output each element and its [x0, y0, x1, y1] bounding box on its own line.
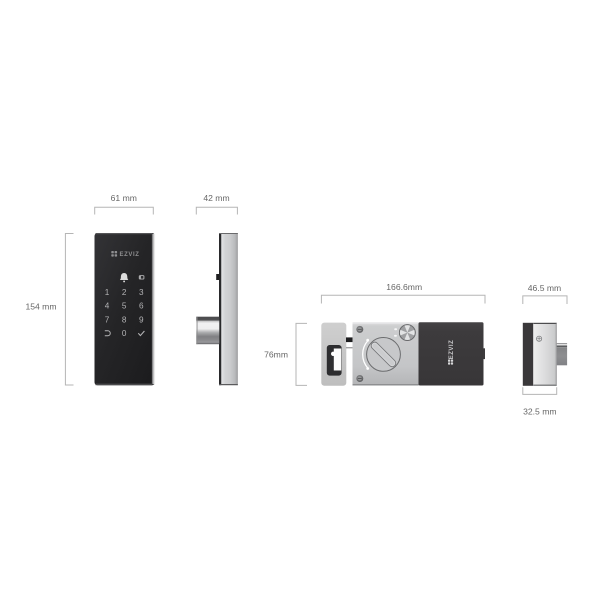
svg-text:76mm: 76mm [264, 350, 288, 360]
svg-text:7: 7 [105, 315, 110, 324]
svg-text:46.5 mm: 46.5 mm [528, 283, 561, 293]
svg-text:3: 3 [139, 288, 144, 297]
svg-text:5: 5 [122, 301, 127, 310]
svg-text:32.5 mm: 32.5 mm [523, 407, 556, 417]
svg-text:9: 9 [139, 315, 144, 324]
svg-text:166.6mm: 166.6mm [386, 282, 422, 292]
svg-text:EZVIZ: EZVIZ [119, 252, 139, 258]
svg-text:0: 0 [122, 329, 127, 338]
svg-text:EZVIZ: EZVIZ [449, 340, 455, 360]
svg-text:6: 6 [139, 301, 144, 310]
svg-text:1: 1 [105, 288, 110, 297]
svg-text:2: 2 [122, 288, 127, 297]
svg-text:42 mm: 42 mm [203, 193, 229, 203]
svg-text:61 mm: 61 mm [111, 193, 137, 203]
svg-text:154 mm: 154 mm [25, 302, 56, 312]
svg-text:4: 4 [105, 301, 110, 310]
svg-text:8: 8 [122, 315, 127, 324]
